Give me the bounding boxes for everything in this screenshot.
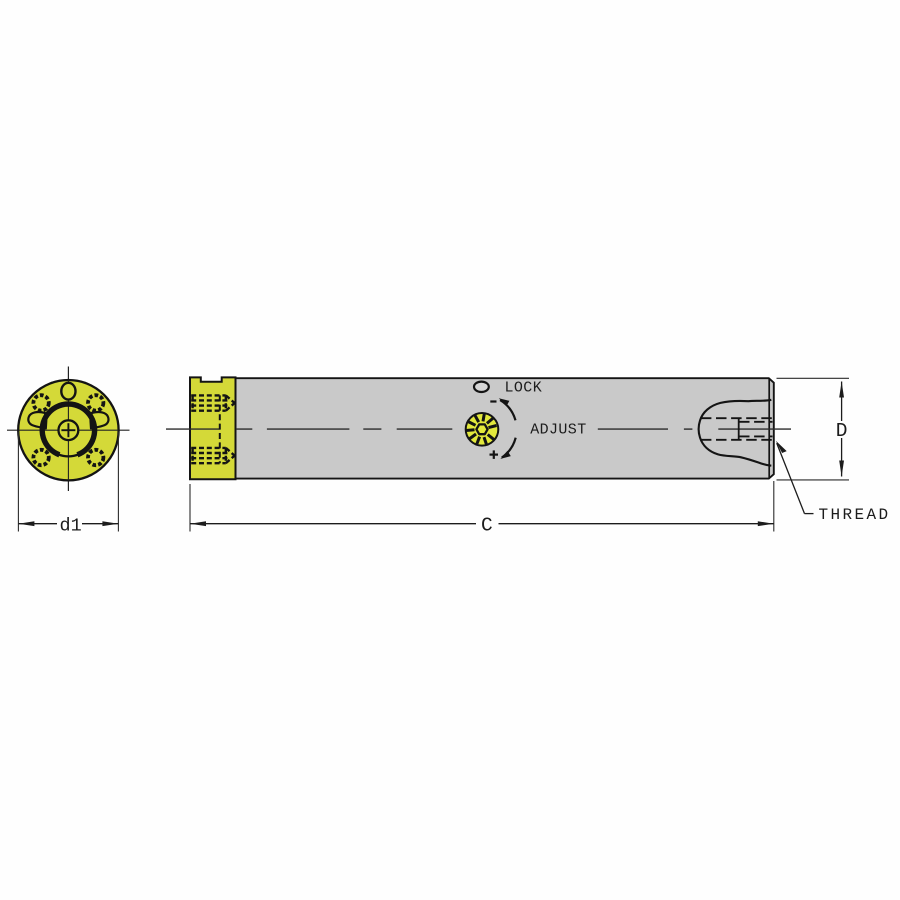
svg-text:C: C	[481, 514, 493, 536]
svg-text:D: D	[836, 420, 848, 442]
svg-text:ADJUST: ADJUST	[530, 422, 586, 439]
svg-text:LOCK: LOCK	[505, 379, 543, 396]
svg-text:d1: d1	[60, 515, 82, 536]
svg-text:THREAD: THREAD	[819, 506, 891, 524]
